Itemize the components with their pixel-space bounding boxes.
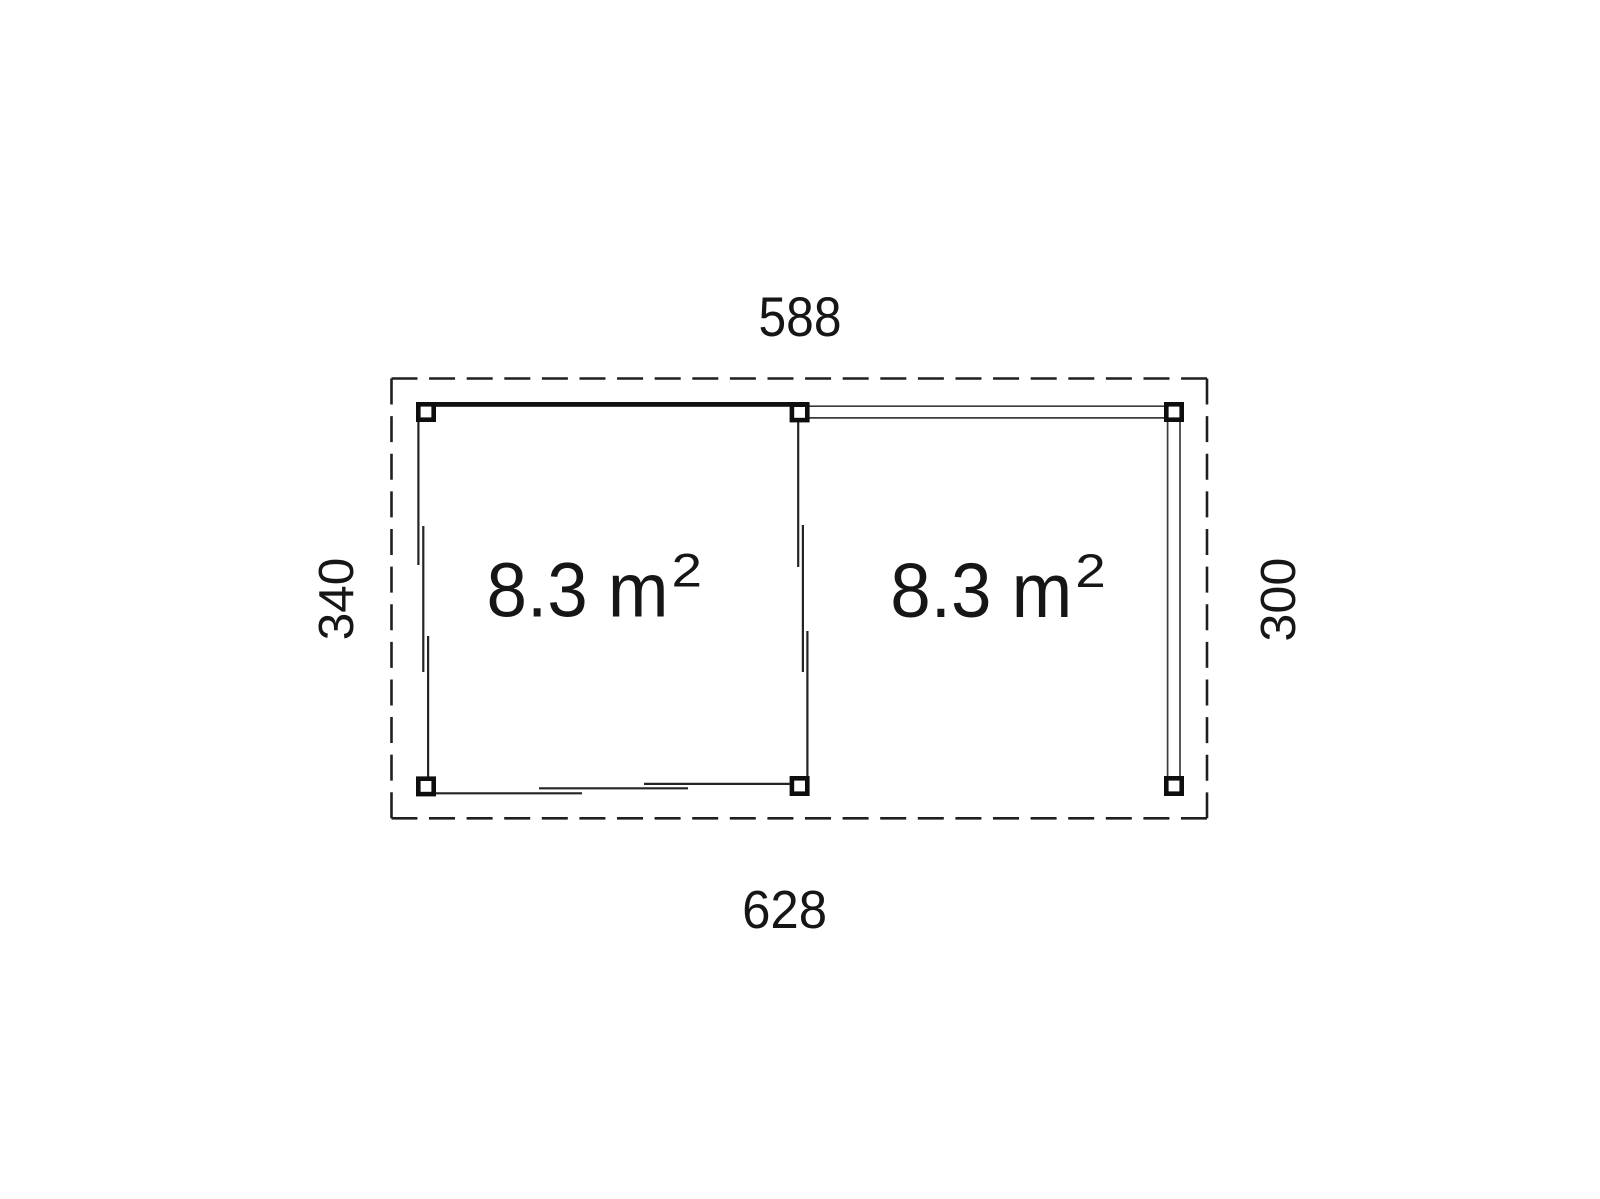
svg-text:340: 340 xyxy=(309,558,364,641)
svg-text:2: 2 xyxy=(672,544,703,597)
svg-text:628: 628 xyxy=(742,881,827,940)
svg-text:588: 588 xyxy=(759,285,842,348)
svg-text:300: 300 xyxy=(1251,558,1306,642)
svg-text:8.3 m: 8.3 m xyxy=(890,548,1072,634)
svg-text:8.3 m: 8.3 m xyxy=(487,548,669,634)
svg-text:2: 2 xyxy=(1075,544,1106,597)
